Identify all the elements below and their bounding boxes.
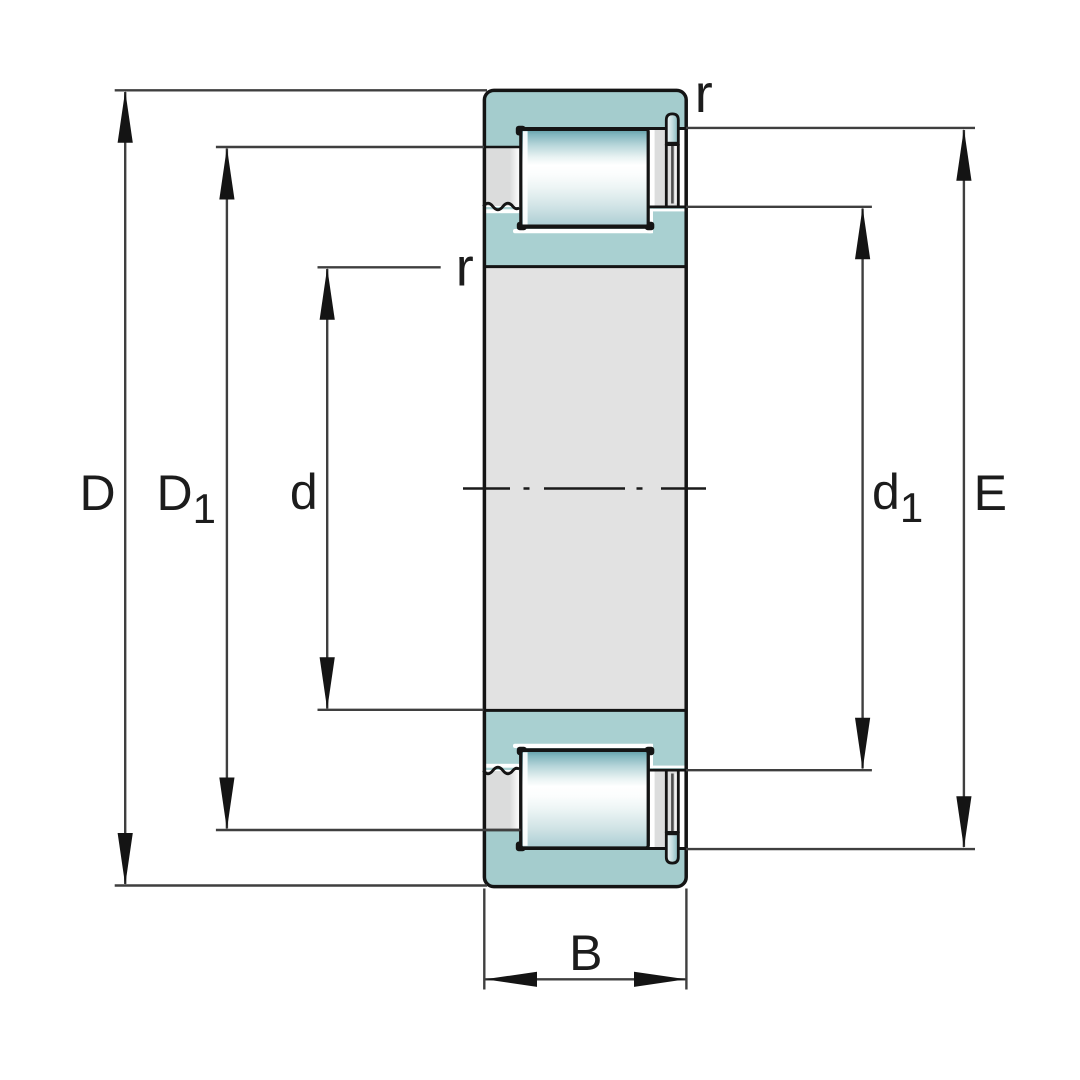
svg-text:r: r — [695, 64, 713, 124]
svg-text:E: E — [974, 465, 1007, 521]
svg-text:B: B — [569, 925, 602, 981]
svg-text:r: r — [456, 237, 474, 297]
svg-text:d: d — [290, 464, 318, 520]
svg-text:D: D — [79, 465, 115, 521]
